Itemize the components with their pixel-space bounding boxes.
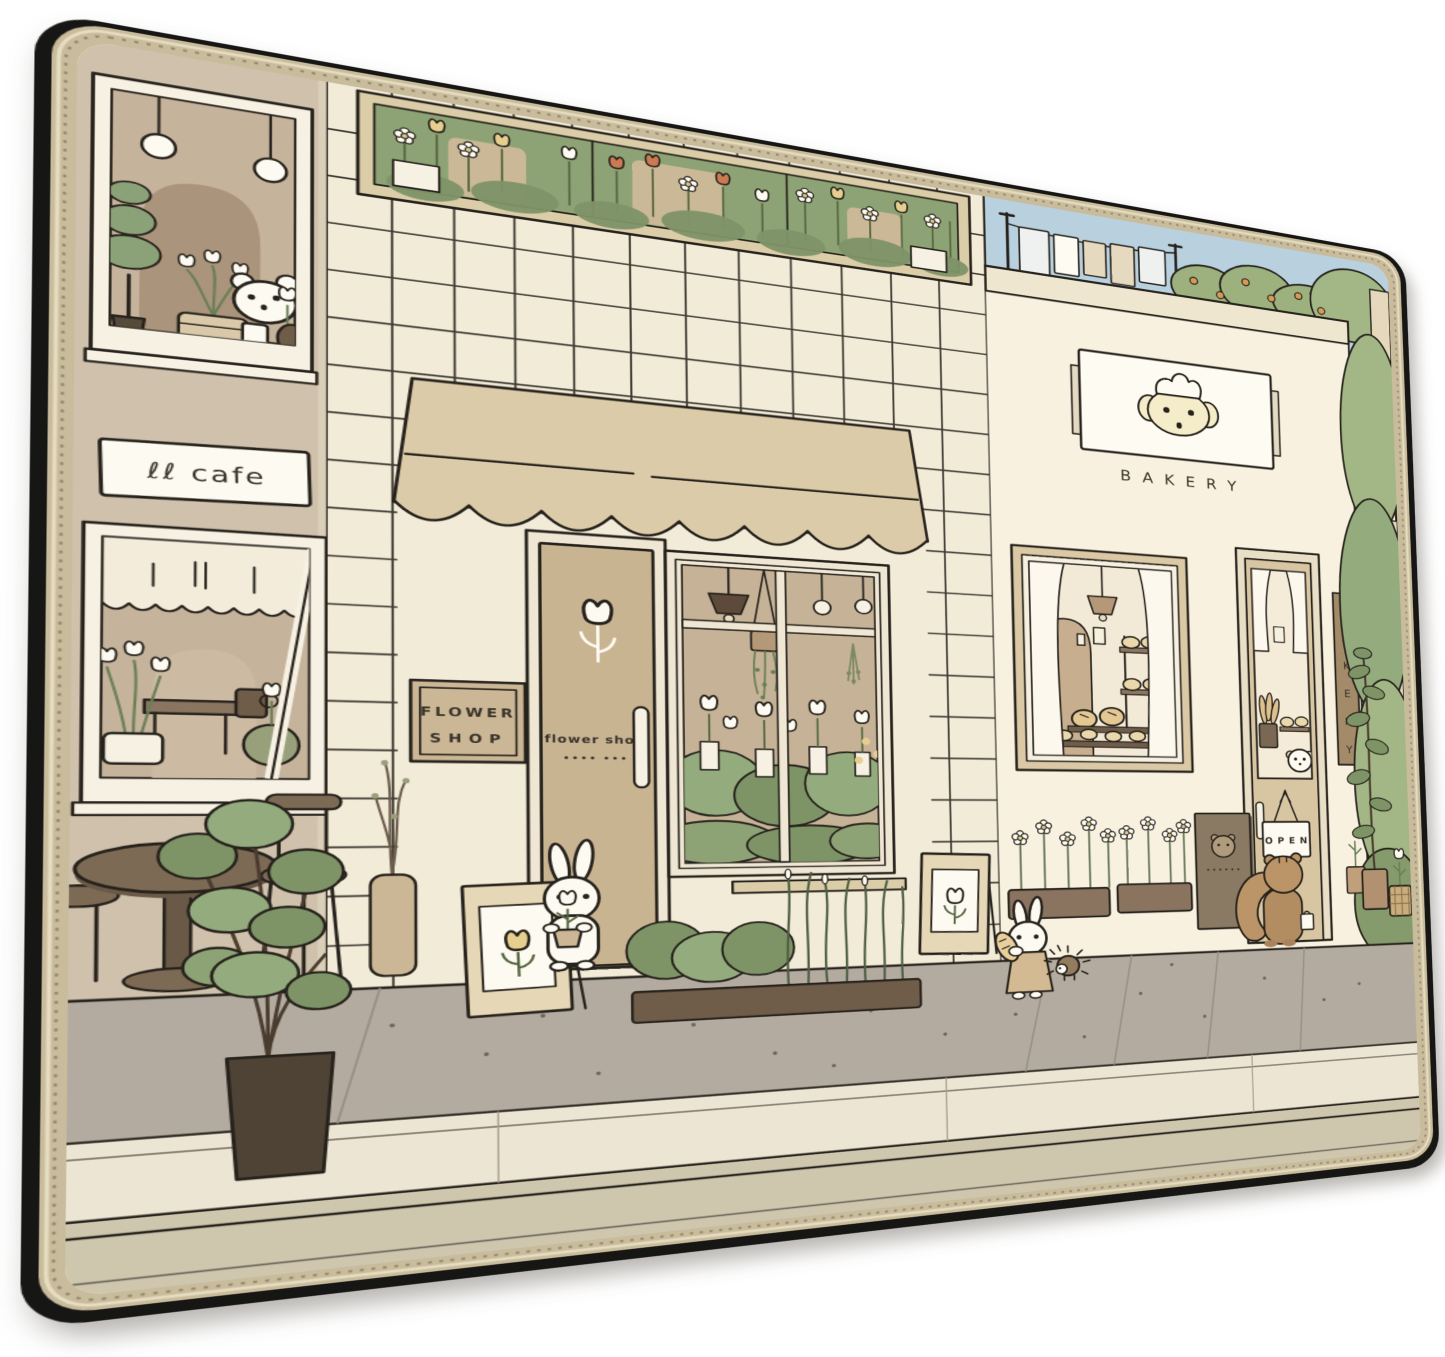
- flower-shop-plaque: FLOWER SHOP: [411, 680, 526, 763]
- svg-text:E: E: [1344, 688, 1351, 700]
- menu-board-dots: ••••••: [1206, 865, 1242, 874]
- plaque-text-2: SHOP: [430, 731, 508, 746]
- flower-shop-building: FLOWER SHOP flower shop •••• •••: [327, 82, 1001, 990]
- door-dots: •••• •••: [562, 753, 628, 765]
- door-text: flower shop: [544, 732, 645, 747]
- open-sign-text: O P E N: [1265, 835, 1308, 846]
- flower-shop-window: [652, 550, 906, 878]
- cafe-lower-window: [73, 521, 334, 815]
- bakery-building: B A K E R Y: [985, 266, 1370, 961]
- bakery-window: [1011, 545, 1192, 772]
- tulip-sign-board-2: [920, 853, 998, 954]
- door-handle: [634, 707, 650, 787]
- cafe-upper-window: [85, 72, 317, 384]
- paper-bag-icon: [1301, 911, 1314, 930]
- svg-text:Y: Y: [1345, 744, 1353, 756]
- plaque-text-1: FLOWER: [420, 704, 516, 720]
- desk-mat: ℓℓ cafe: [20, 10, 1440, 1330]
- product-photo: ℓℓ cafe: [0, 0, 1445, 1357]
- teapot-icon: [1211, 834, 1235, 857]
